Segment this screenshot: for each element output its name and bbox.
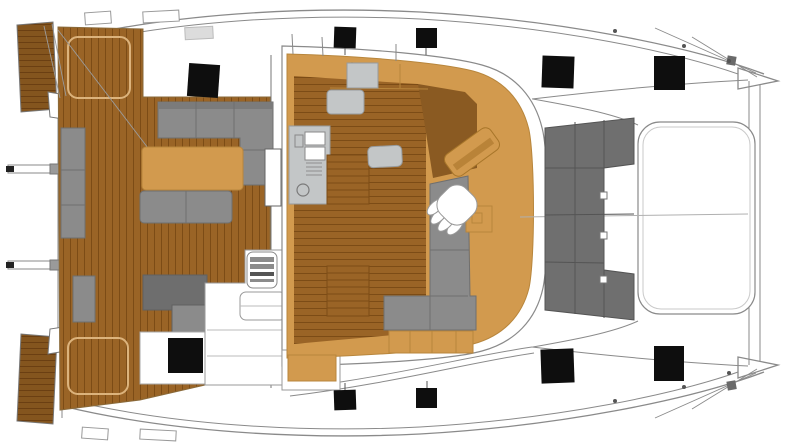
deck-hatch <box>187 63 220 98</box>
helm-instrument-bar-3 <box>250 279 274 282</box>
saloon <box>282 34 548 390</box>
rigging-dot <box>727 371 731 375</box>
rigging-dot <box>682 44 686 48</box>
galley-sink-basin-1 <box>305 132 325 145</box>
galley-sink-unit <box>347 63 378 88</box>
deck-hatch <box>334 390 357 411</box>
rigging-dot <box>727 59 731 63</box>
davit-arm <box>6 260 62 270</box>
cockpit-sofa-backrest <box>158 102 273 109</box>
helm-instrument-bar-2 <box>250 264 274 269</box>
aft-cockpit <box>44 24 290 410</box>
davit-arm <box>6 164 62 174</box>
starboard-bow-fitting <box>726 380 736 390</box>
galley-cooktop <box>327 90 364 114</box>
deck-plan-drawing <box>0 0 800 446</box>
helm-wheel-bar <box>250 272 274 276</box>
galley-sink-basin-2 <box>305 147 325 160</box>
transom-locker <box>73 276 95 322</box>
forward-sofa-notch-2 <box>600 232 607 239</box>
saloon-sideboard <box>389 331 473 353</box>
deck-hatch <box>654 56 685 90</box>
rigging-dot <box>682 385 686 389</box>
starboard-foredeck-line <box>533 321 638 347</box>
deck-hatch <box>540 348 574 383</box>
companionway-stairs-starboard <box>327 266 369 316</box>
deck-hatch <box>416 388 437 408</box>
helm-instrument-bar-1 <box>250 257 274 262</box>
foredeck <box>520 55 755 390</box>
deck-hatch <box>541 55 574 88</box>
forward-sofa-notch-3 <box>600 276 607 283</box>
boat-deck-plan <box>0 0 800 446</box>
deck-hatch <box>654 346 684 381</box>
davit-arms <box>6 164 62 270</box>
companionway-stairs-port <box>327 155 369 204</box>
coachroof-step-strip <box>185 26 214 39</box>
deck-fitting <box>82 427 109 440</box>
deck-hatch <box>334 27 357 49</box>
mast-post <box>367 145 402 168</box>
deck-fitting <box>143 10 180 23</box>
deck-hatch <box>168 338 203 373</box>
cockpit-door <box>265 149 281 206</box>
rigging-dot <box>613 399 617 403</box>
deck-fitting <box>85 11 112 25</box>
forward-cockpit-sofa <box>545 118 634 320</box>
trampoline <box>638 122 755 314</box>
deck-fitting <box>140 429 176 441</box>
rigging-dot <box>613 29 617 33</box>
deck-hatch <box>416 28 437 48</box>
saloon-aft-extension-tan <box>288 355 336 381</box>
forward-sofa-notch-1 <box>600 192 607 199</box>
cockpit-table <box>142 147 243 190</box>
transom-bench <box>61 128 85 238</box>
